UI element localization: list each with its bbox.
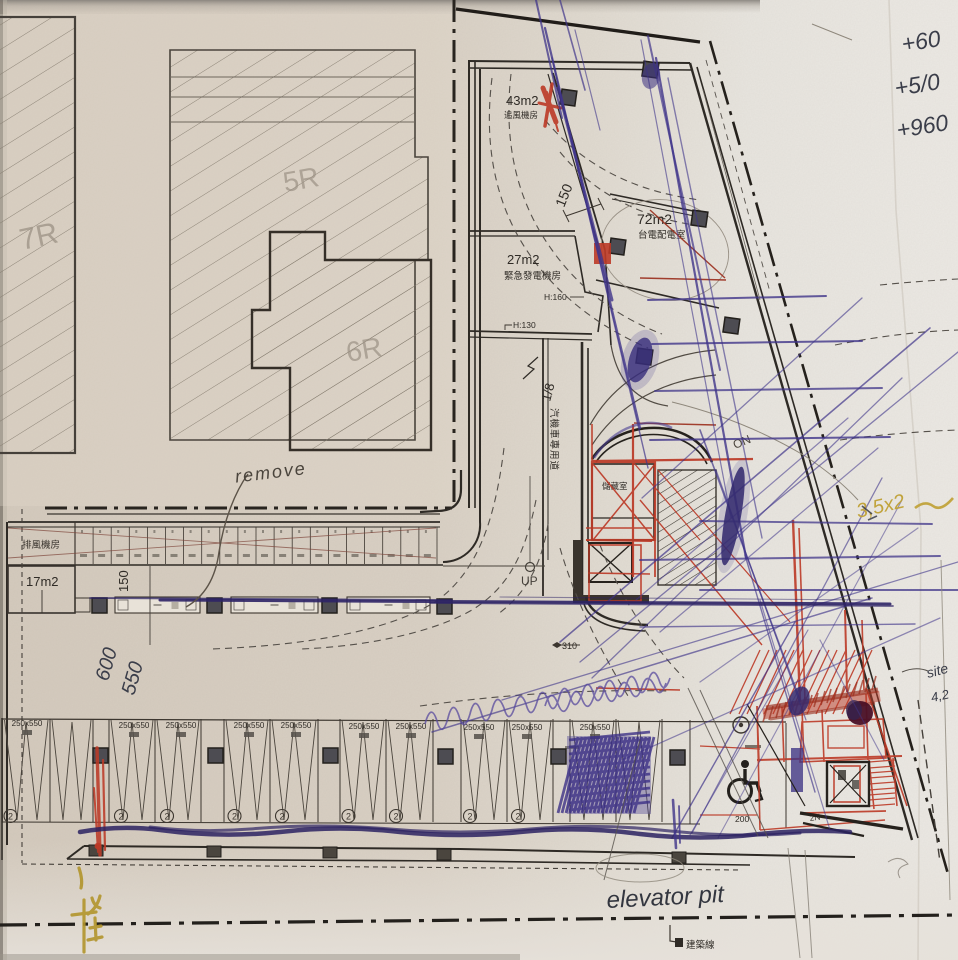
svg-text:追風機房: 追風機房 (504, 110, 538, 120)
svg-text:27m2: 27m2 (507, 252, 540, 267)
svg-text:H:160: H:160 (544, 292, 567, 302)
svg-text:緊急發電機房: 緊急發電機房 (504, 270, 561, 282)
svg-text:排風機房: 排風機房 (22, 539, 60, 551)
svg-text:150: 150 (116, 570, 131, 592)
svg-text:2: 2 (515, 812, 520, 822)
svg-text:250x550: 250x550 (119, 721, 150, 730)
svg-text:43m2: 43m2 (506, 93, 539, 108)
svg-text:250x550: 250x550 (12, 719, 43, 728)
svg-text:17m2: 17m2 (26, 574, 59, 589)
svg-text:250x550: 250x550 (166, 721, 197, 730)
svg-text:建築線: 建築線 (686, 939, 715, 951)
svg-text:汽機車專用道: 汽機車專用道 (548, 408, 560, 471)
svg-text:250x550: 250x550 (281, 721, 312, 730)
svg-text:2: 2 (232, 812, 237, 822)
svg-text:儲藏室: 儲藏室 (602, 481, 628, 491)
svg-text:5R: 5R (281, 161, 322, 198)
svg-text:2: 2 (118, 812, 123, 822)
svg-text:2: 2 (8, 812, 13, 822)
svg-text:250x550: 250x550 (234, 721, 265, 730)
svg-text:250x550: 250x550 (580, 723, 611, 732)
svg-text:2: 2 (279, 812, 284, 822)
svg-text:250x550: 250x550 (512, 723, 543, 732)
svg-text:H:130: H:130 (513, 320, 536, 330)
svg-text:UP: UP (521, 574, 538, 588)
svg-text:2: 2 (393, 812, 398, 822)
svg-text:310: 310 (562, 641, 577, 651)
svg-text:250x550: 250x550 (396, 722, 427, 731)
svg-text:250x550: 250x550 (464, 723, 495, 732)
svg-text:2: 2 (467, 812, 472, 822)
svg-text:250x550: 250x550 (349, 722, 380, 731)
svg-text:6R: 6R (344, 331, 385, 368)
svg-text:2: 2 (164, 812, 169, 822)
svg-text:2: 2 (346, 812, 351, 822)
